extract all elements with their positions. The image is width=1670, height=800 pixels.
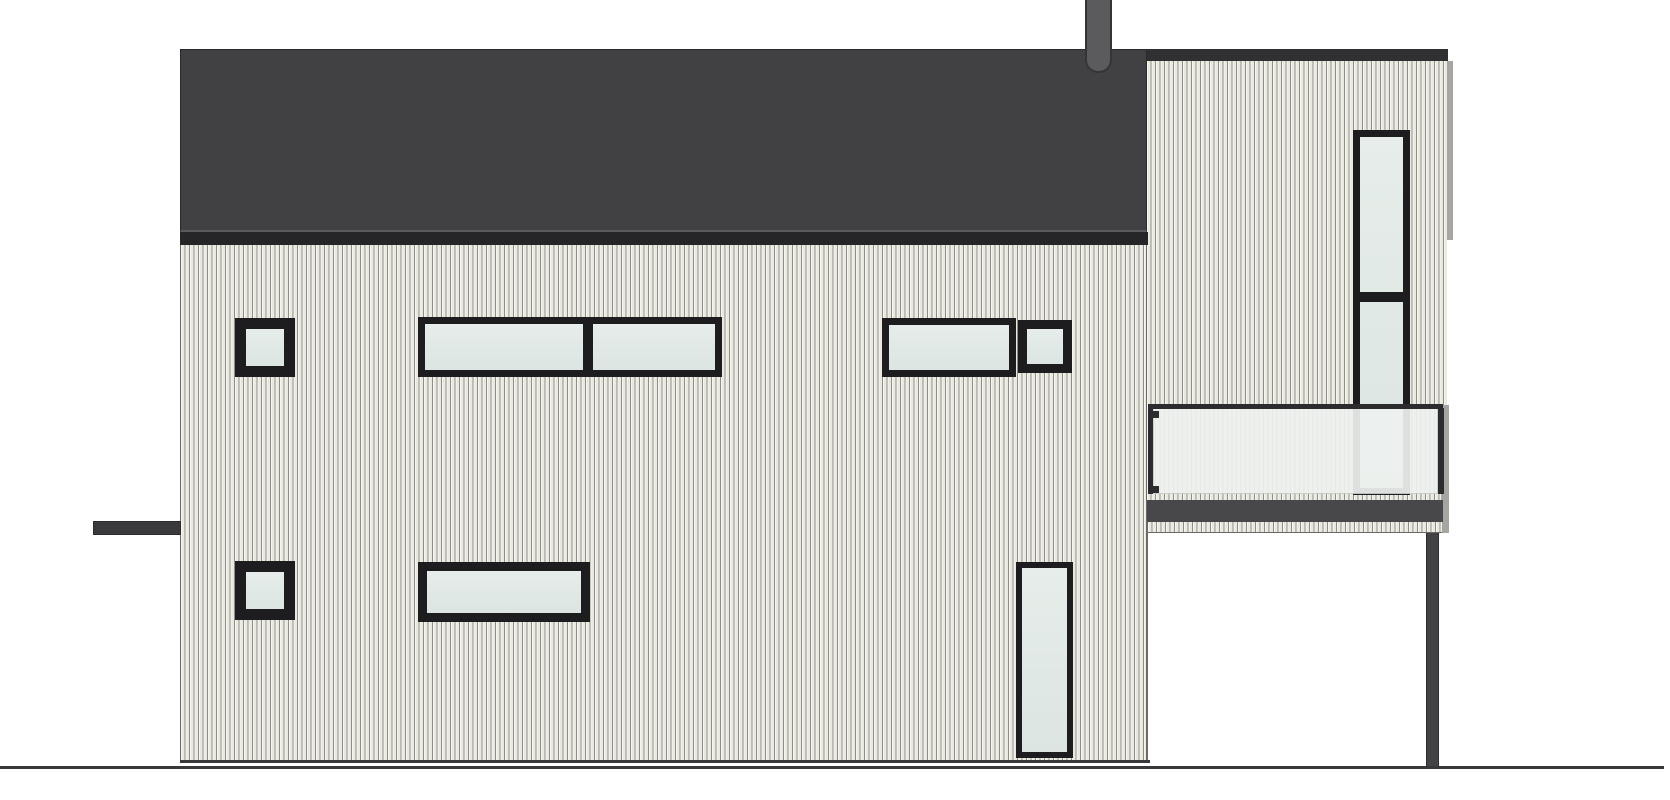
window-tall-lower <box>1016 562 1073 758</box>
window-upper-band-left <box>418 317 722 377</box>
window-glass <box>246 329 284 366</box>
balcony-handrail <box>1148 404 1443 409</box>
building-base-line <box>180 760 1150 763</box>
balcony-glass-clip-top <box>1153 411 1159 418</box>
window-glass <box>425 324 715 370</box>
window-glass <box>427 571 581 613</box>
balcony-glass-right-post <box>1438 408 1444 494</box>
chimney-flue-pipe <box>1085 0 1112 73</box>
elevation-canvas <box>0 0 1670 800</box>
balcony-floor-slab <box>1147 500 1443 522</box>
window-glass <box>1027 329 1063 364</box>
window-lower-band <box>418 562 590 622</box>
window-glass <box>246 572 284 609</box>
window-lower-left-square <box>235 561 295 620</box>
balcony-soffit-strip <box>1148 522 1442 533</box>
tower-roof-edge-band <box>1147 49 1448 61</box>
tower-corner-return-strip <box>1447 61 1453 240</box>
left-projecting-beam <box>93 521 181 535</box>
balcony-support-post <box>1426 533 1439 768</box>
balcony-glass-balustrade <box>1153 408 1438 494</box>
main-roof-fascia <box>180 232 1148 245</box>
ground-line <box>0 766 1664 769</box>
window-mullion-vertical <box>583 317 593 377</box>
balcony-glass-clip-bottom <box>1153 486 1159 493</box>
window-glass <box>1022 568 1067 752</box>
window-glass <box>889 325 1009 370</box>
window-upper-right-square <box>1018 320 1072 373</box>
main-roof <box>180 49 1147 232</box>
window-upper-left-square <box>235 318 295 377</box>
window-upper-band-right <box>882 318 1016 377</box>
window-mullion-horizontal <box>1353 292 1410 302</box>
